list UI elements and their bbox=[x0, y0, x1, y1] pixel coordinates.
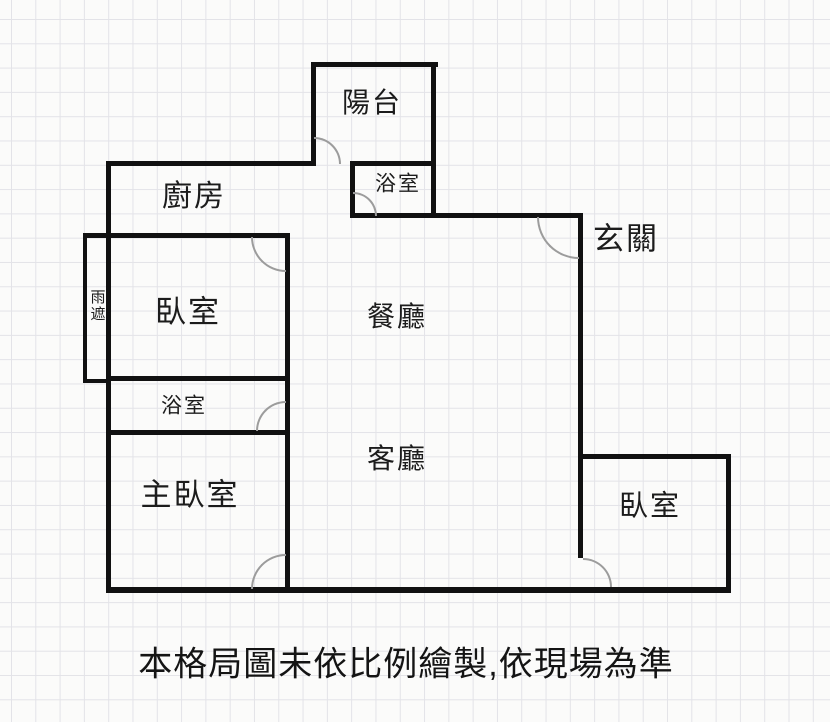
door-arc-bathroom-top bbox=[353, 192, 377, 216]
wall-right bbox=[578, 213, 583, 558]
wall-kitchen-top bbox=[106, 161, 316, 166]
wall-raincover-left bbox=[83, 233, 87, 383]
door-arc-master-bedroom bbox=[251, 554, 286, 589]
wall-bedroom-left-bottom bbox=[106, 376, 290, 381]
wall-bedroom-right-top bbox=[578, 454, 731, 459]
wall-bath-top-top bbox=[350, 161, 436, 166]
room-label-kitchen: 廚房 bbox=[162, 182, 226, 212]
room-label-entryway: 玄關 bbox=[593, 224, 659, 255]
door-arc-bathroom-mid bbox=[256, 401, 286, 431]
room-label-bedroom-right: 臥室 bbox=[619, 493, 681, 522]
wall-balcony-top bbox=[311, 62, 438, 67]
door-arc-balcony bbox=[314, 137, 341, 164]
room-label-dining-room: 餐廳 bbox=[367, 303, 427, 331]
room-label-balcony: 陽台 bbox=[342, 89, 402, 117]
room-label-living-room: 客廳 bbox=[367, 445, 427, 473]
floorplan-canvas: 陽台 浴室 廚房 玄關 臥室 雨遮 餐廳 浴室 客廳 主臥室 臥室 本格局圖未依… bbox=[0, 0, 830, 722]
room-label-bedroom-left: 臥室 bbox=[155, 297, 221, 328]
room-label-rain-cover: 雨遮 bbox=[90, 289, 105, 323]
wall-balcony-bath-right bbox=[431, 62, 436, 218]
door-arc-bedroom-left bbox=[251, 237, 286, 272]
wall-bottom bbox=[106, 587, 731, 593]
wall-bedroom-right-right bbox=[726, 454, 731, 593]
disclaimer-caption: 本格局圖未依比例繪製,依現場為準 bbox=[138, 637, 673, 686]
room-label-bathroom-top: 浴室 bbox=[375, 174, 421, 195]
door-arc-entryway bbox=[537, 217, 579, 259]
room-label-bathroom-mid: 浴室 bbox=[161, 396, 207, 417]
room-label-master-bedroom: 主臥室 bbox=[141, 480, 240, 511]
door-arc-bedroom-right bbox=[583, 558, 612, 587]
